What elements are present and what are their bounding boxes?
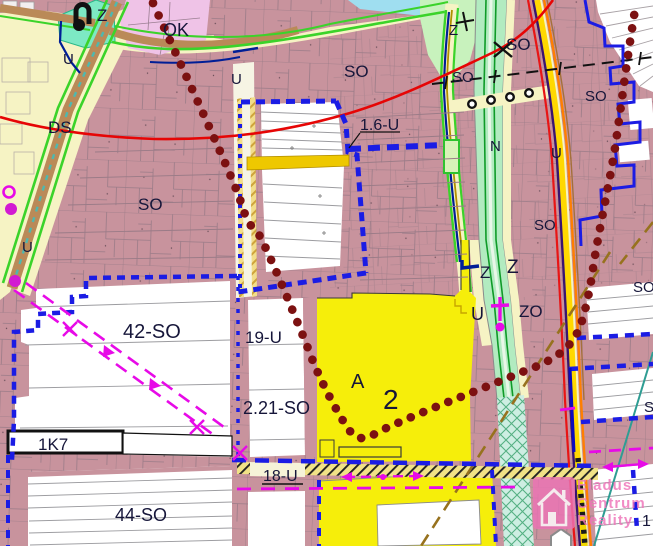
- svg-text:A: A: [351, 371, 365, 393]
- svg-text:U: U: [22, 239, 33, 256]
- svg-text:Centrum: Centrum: [577, 495, 646, 512]
- svg-text:DS: DS: [48, 118, 72, 137]
- svg-text:42-SO: 42-SO: [123, 321, 181, 343]
- svg-text:2: 2: [383, 384, 399, 415]
- svg-text:SO: SO: [506, 35, 531, 54]
- svg-text:1: 1: [642, 513, 651, 530]
- svg-text:S: S: [644, 399, 653, 416]
- svg-text:Z: Z: [449, 22, 458, 39]
- svg-text:N: N: [490, 138, 501, 155]
- svg-text:1K7: 1K7: [38, 435, 68, 454]
- svg-text:ZO: ZO: [519, 302, 543, 321]
- svg-text:SO: SO: [452, 69, 474, 86]
- svg-text:Eladus: Eladus: [577, 477, 632, 494]
- svg-text:OK: OK: [163, 20, 189, 40]
- svg-text:U: U: [63, 51, 74, 68]
- svg-text:SO: SO: [138, 195, 163, 214]
- svg-text:44-SO: 44-SO: [115, 505, 167, 525]
- svg-text:Z: Z: [507, 257, 519, 278]
- svg-text:SO: SO: [585, 88, 607, 105]
- svg-text:U: U: [471, 304, 484, 324]
- svg-text:2.21-SO: 2.21-SO: [243, 398, 310, 418]
- svg-text:19-U: 19-U: [245, 328, 282, 347]
- svg-text:SO: SO: [344, 62, 369, 81]
- svg-text:18-U: 18-U: [263, 468, 298, 485]
- svg-text:U: U: [231, 71, 242, 88]
- svg-text:Reality: Reality: [577, 512, 633, 529]
- svg-text:U: U: [551, 145, 562, 162]
- svg-text:SO: SO: [534, 217, 556, 234]
- svg-text:SO: SO: [633, 279, 653, 296]
- svg-text:Z: Z: [480, 263, 490, 282]
- svg-text:Z: Z: [97, 6, 107, 25]
